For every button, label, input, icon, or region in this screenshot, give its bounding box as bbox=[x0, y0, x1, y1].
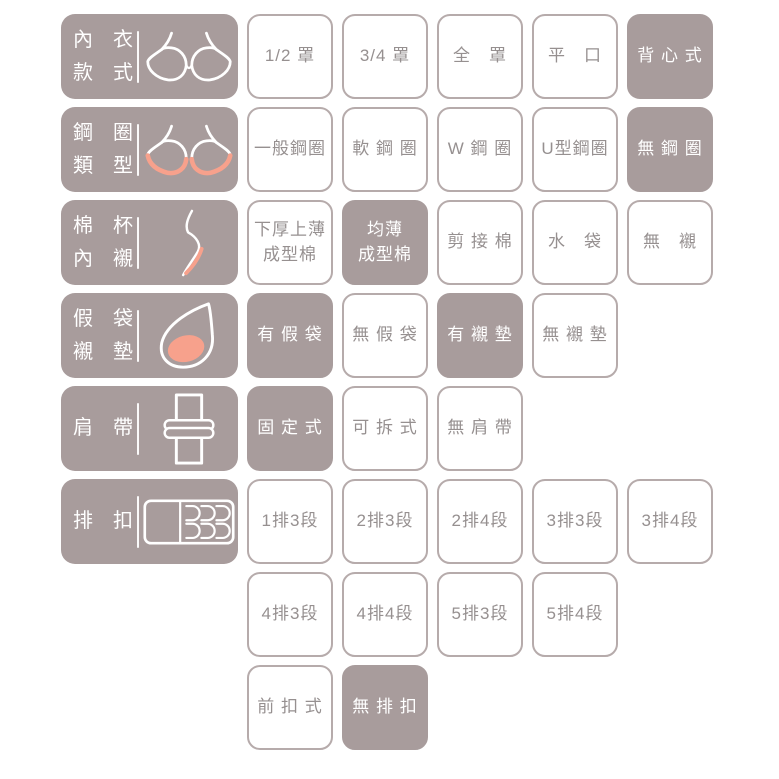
category-hook-closure: 排 扣 bbox=[61, 479, 238, 564]
option-thick-bottom-molded-cotton: 下厚上薄 成型棉 bbox=[247, 200, 333, 285]
bra-underwire-icon bbox=[139, 121, 238, 179]
option-hook-4row-3col: 4排3段 bbox=[247, 572, 333, 657]
category-label: 棉 杯 內 襯 bbox=[69, 210, 137, 276]
category-label: 鋼 圈 類 型 bbox=[69, 117, 137, 183]
option-hook-1row-3col: 1排3段 bbox=[247, 479, 333, 564]
option-camisole-style: 背 心 式 bbox=[627, 14, 713, 99]
option-regular-wire: 一般鋼圈 bbox=[247, 107, 333, 192]
option-has-pad-pocket: 有 假 袋 bbox=[247, 293, 333, 378]
option-hook-4row-4col: 4排4段 bbox=[342, 572, 428, 657]
option-front-closure: 前 扣 式 bbox=[247, 665, 333, 750]
divider bbox=[137, 403, 139, 455]
category-cup-lining: 棉 杯 內 襯 bbox=[61, 200, 238, 285]
option-bandeau: 平 口 bbox=[532, 14, 618, 99]
option-hook-3row-3col: 3排3段 bbox=[532, 479, 618, 564]
option-u-wire: U型鋼圈 bbox=[532, 107, 618, 192]
option-no-closure: 無 排 扣 bbox=[342, 665, 428, 750]
category-label: 肩 帶 bbox=[69, 412, 137, 445]
spec-grid: 內 衣 款 式 1/2 罩 3/4 罩 全 罩 平 口 背 心 式 鋼 圈 類 … bbox=[61, 14, 713, 750]
category-label: 內 衣 款 式 bbox=[69, 24, 137, 90]
option-strapless: 無 肩 帶 bbox=[437, 386, 523, 471]
bra-spec-chart: 內 衣 款 式 1/2 罩 3/4 罩 全 罩 平 口 背 心 式 鋼 圈 類 … bbox=[0, 0, 779, 779]
cup-profile-icon bbox=[139, 208, 238, 278]
option-half-cup: 1/2 罩 bbox=[247, 14, 333, 99]
category-label: 假 袋 襯 墊 bbox=[69, 303, 137, 369]
divider bbox=[137, 310, 139, 362]
option-hook-2row-3col: 2排3段 bbox=[342, 479, 428, 564]
bra-outline-icon bbox=[139, 28, 238, 86]
pad-icon bbox=[139, 299, 238, 373]
category-bra-style: 內 衣 款 式 bbox=[61, 14, 238, 99]
option-cut-and-sew-cotton: 剪 接 棉 bbox=[437, 200, 523, 285]
option-has-padding: 有 襯 墊 bbox=[437, 293, 523, 378]
option-hook-5row-3col: 5排3段 bbox=[437, 572, 523, 657]
option-even-thin-molded-cotton: 均薄 成型棉 bbox=[342, 200, 428, 285]
category-pad-pocket: 假 袋 襯 墊 bbox=[61, 293, 238, 378]
option-fixed-strap: 固 定 式 bbox=[247, 386, 333, 471]
option-w-wire: W 鋼 圈 bbox=[437, 107, 523, 192]
option-soft-wire: 軟 鋼 圈 bbox=[342, 107, 428, 192]
option-water-pad: 水 袋 bbox=[532, 200, 618, 285]
divider bbox=[137, 31, 139, 83]
strap-icon bbox=[139, 392, 238, 466]
category-label: 排 扣 bbox=[69, 505, 137, 538]
option-no-lining: 無 襯 bbox=[627, 200, 713, 285]
option-no-pad-pocket: 無 假 袋 bbox=[342, 293, 428, 378]
option-full-cup: 全 罩 bbox=[437, 14, 523, 99]
option-detachable-strap: 可 拆 式 bbox=[342, 386, 428, 471]
category-wire-type: 鋼 圈 類 型 bbox=[61, 107, 238, 192]
divider bbox=[137, 496, 139, 548]
divider bbox=[137, 217, 139, 269]
option-three-quarter-cup: 3/4 罩 bbox=[342, 14, 428, 99]
option-hook-5row-4col: 5排4段 bbox=[532, 572, 618, 657]
option-hook-3row-4col: 3排4段 bbox=[627, 479, 713, 564]
hook-closure-icon bbox=[139, 495, 238, 549]
option-wireless: 無 鋼 圈 bbox=[627, 107, 713, 192]
category-shoulder-strap: 肩 帶 bbox=[61, 386, 238, 471]
option-no-padding: 無 襯 墊 bbox=[532, 293, 618, 378]
option-hook-2row-4col: 2排4段 bbox=[437, 479, 523, 564]
divider bbox=[137, 124, 139, 176]
